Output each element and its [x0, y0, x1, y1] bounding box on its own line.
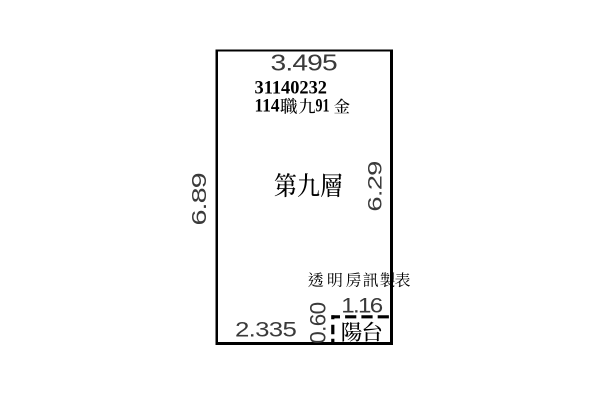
svg-text:114: 114	[255, 97, 280, 117]
svg-text:3.495: 3.495	[271, 51, 338, 76]
svg-text:31140232: 31140232	[255, 79, 328, 99]
svg-text:91: 91	[316, 97, 330, 117]
svg-text:2.335: 2.335	[235, 318, 297, 342]
svg-text:1.16: 1.16	[341, 294, 383, 317]
svg-text:6.89: 6.89	[188, 172, 211, 225]
svg-text:0.60: 0.60	[306, 302, 331, 344]
svg-text:6.29: 6.29	[365, 161, 386, 212]
